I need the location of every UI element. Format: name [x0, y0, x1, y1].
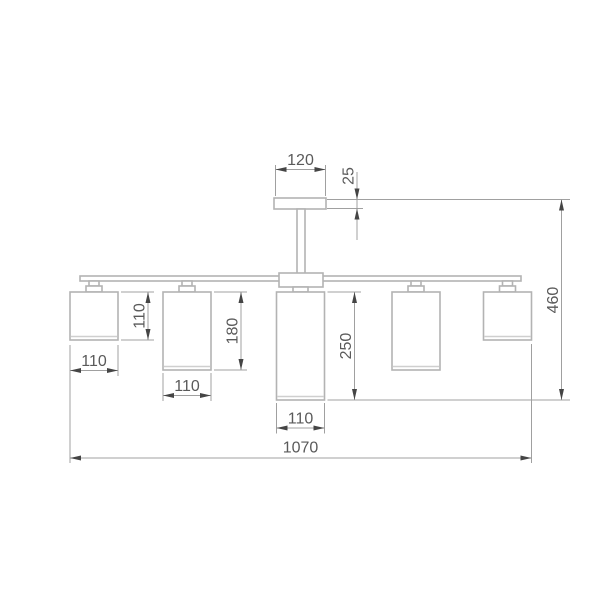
- dimension-label: 25: [341, 167, 358, 185]
- arrowhead-left: [276, 167, 287, 172]
- arrowhead-right: [107, 368, 118, 373]
- arrowhead-left: [163, 393, 174, 398]
- lamp-5-shade: [484, 292, 532, 340]
- lamp-4-socket: [408, 286, 424, 292]
- arrowhead-up: [355, 209, 360, 220]
- dimension-label: 110: [174, 378, 200, 395]
- dimension-label: 120: [287, 152, 314, 169]
- dim-shade-center-height: 250: [328, 292, 571, 400]
- lamp-2-shade: [163, 292, 211, 370]
- arrowhead-right: [315, 167, 326, 172]
- arrowhead-right: [314, 426, 325, 431]
- arrowhead-up: [146, 292, 151, 303]
- dimension-label: 250: [338, 333, 355, 360]
- lamp-1-socket: [86, 286, 102, 292]
- arrowhead-right: [200, 393, 211, 398]
- dimension-label: 110: [288, 411, 314, 428]
- arrowhead-left: [277, 426, 288, 431]
- dim-overall-height: 460: [545, 200, 564, 401]
- lamp-2-socket: [179, 286, 195, 292]
- arrowhead-right: [521, 456, 532, 461]
- canopy-plate: [274, 198, 326, 209]
- arrowhead-left: [70, 456, 81, 461]
- lamp-5-socket: [500, 286, 516, 292]
- dimension-label: 110: [132, 303, 149, 329]
- dim-shade-small-height: 110: [121, 292, 154, 340]
- dim-shade-width-left: 110: [70, 345, 118, 463]
- arrowhead-up: [559, 200, 564, 211]
- arrowhead-down: [239, 359, 244, 370]
- arrowhead-down: [146, 329, 151, 340]
- lamp-dimension-drawing: 120 25 110 180 250: [0, 0, 600, 600]
- lamp-4-shade: [392, 292, 440, 370]
- arrowhead-down: [559, 389, 564, 400]
- dim-shade-width-mid: 110: [163, 373, 211, 401]
- arrowhead-down: [355, 189, 360, 200]
- dimension-label: 180: [225, 318, 242, 345]
- fixture: [70, 198, 532, 400]
- arrowhead-down: [352, 389, 357, 400]
- dimension-label: 1070: [283, 440, 319, 457]
- dimension-label: 110: [81, 353, 107, 370]
- lamp-1-shade: [70, 292, 118, 340]
- arrowhead-up: [239, 292, 244, 303]
- dim-canopy-thickness: 25: [327, 167, 570, 240]
- dim-shade-medium-height: 180: [214, 292, 247, 370]
- arrowhead-up: [352, 292, 357, 303]
- lamp-3-shade: [277, 292, 325, 400]
- down-rod: [297, 209, 305, 274]
- central-hub: [279, 273, 323, 287]
- drawing-canvas: 120 25 110 180 250: [0, 0, 600, 600]
- dimension-label: 460: [545, 287, 562, 314]
- arrowhead-left: [70, 368, 81, 373]
- dim-canopy-width: 120: [276, 152, 326, 196]
- dim-shade-width-center: 110: [277, 403, 325, 434]
